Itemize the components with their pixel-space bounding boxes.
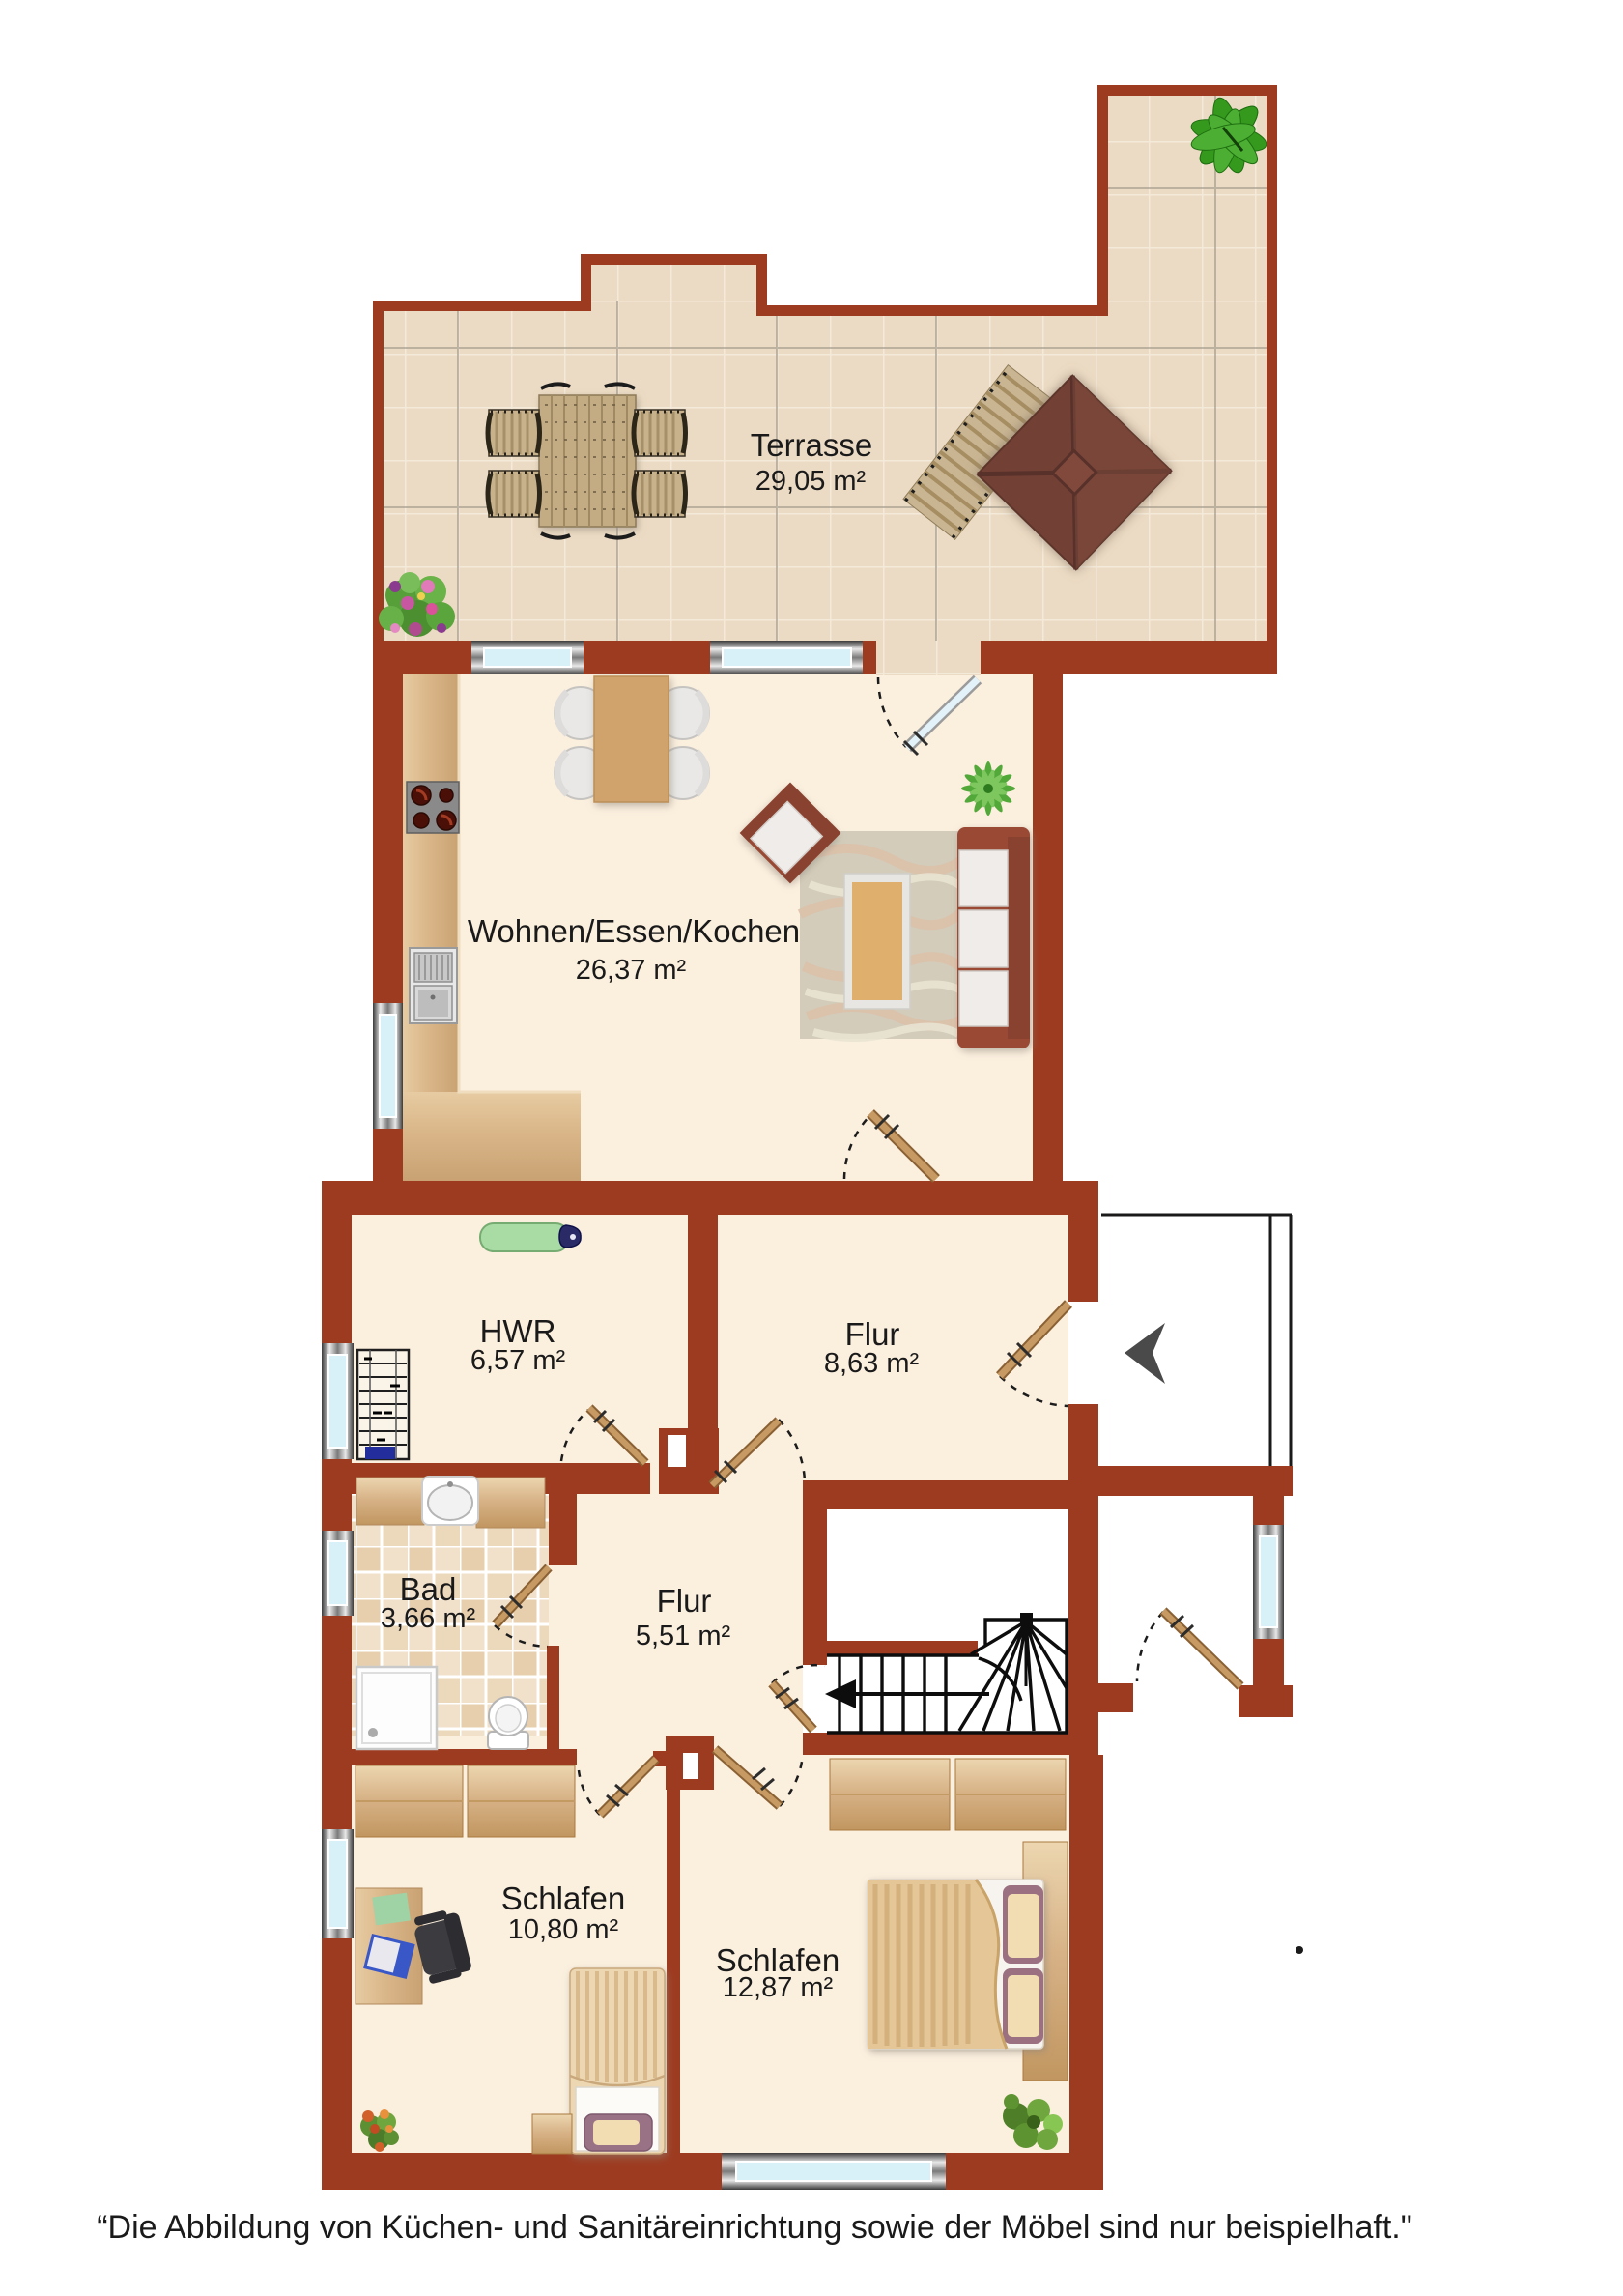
- svg-text:26,37 m²: 26,37 m²: [576, 955, 687, 986]
- svg-text:5,51 m²: 5,51 m²: [636, 1621, 731, 1651]
- svg-text:Schlafen: Schlafen: [501, 1880, 625, 1916]
- svg-text:HWR: HWR: [480, 1313, 556, 1349]
- svg-text:6,57 m²: 6,57 m²: [470, 1345, 566, 1376]
- svg-text:Flur: Flur: [845, 1316, 900, 1352]
- svg-text:Bad: Bad: [400, 1571, 457, 1607]
- svg-text:3,66 m²: 3,66 m²: [381, 1603, 476, 1634]
- svg-text:Flur: Flur: [657, 1583, 712, 1619]
- svg-text:8,63 m²: 8,63 m²: [824, 1348, 920, 1379]
- svg-text:12,87 m²: 12,87 m²: [723, 1972, 834, 2003]
- svg-text:Terrasse: Terrasse: [751, 427, 873, 463]
- svg-text:10,80 m²: 10,80 m²: [508, 1914, 619, 1945]
- svg-text:“Die Abbildung von Küchen- und: “Die Abbildung von Küchen- und Sanitärei…: [97, 2209, 1412, 2246]
- svg-text:29,05 m²: 29,05 m²: [755, 466, 867, 497]
- svg-text:Wohnen/Essen/Kochen: Wohnen/Essen/Kochen: [468, 913, 800, 949]
